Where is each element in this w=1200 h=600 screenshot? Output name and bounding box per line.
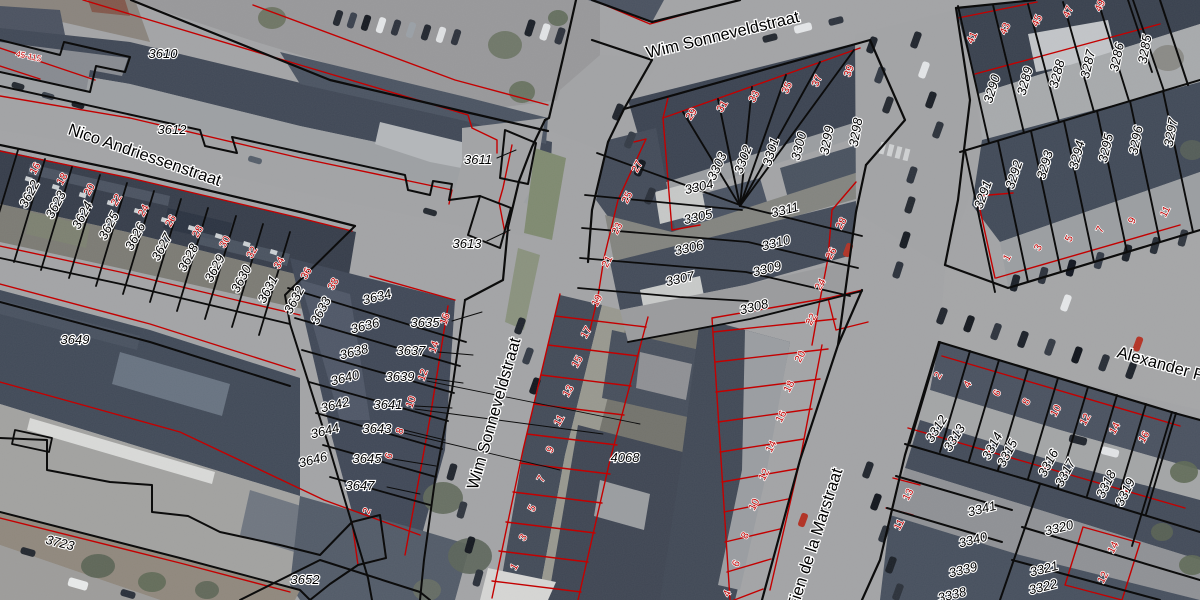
svg-text:3643: 3643 xyxy=(363,421,393,436)
svg-text:3610: 3610 xyxy=(149,46,179,61)
svg-text:4068: 4068 xyxy=(611,450,641,465)
svg-text:3635: 3635 xyxy=(411,315,441,330)
svg-text:3649: 3649 xyxy=(61,332,90,347)
svg-text:3612: 3612 xyxy=(158,122,188,137)
svg-text:3613: 3613 xyxy=(453,236,483,251)
svg-text:3639: 3639 xyxy=(386,369,415,384)
svg-text:3611: 3611 xyxy=(464,152,492,167)
svg-text:3641: 3641 xyxy=(374,397,403,412)
svg-text:3637: 3637 xyxy=(397,343,427,358)
svg-text:3645: 3645 xyxy=(353,451,383,466)
svg-text:3647: 3647 xyxy=(346,478,376,493)
svg-text:3652: 3652 xyxy=(291,572,321,587)
